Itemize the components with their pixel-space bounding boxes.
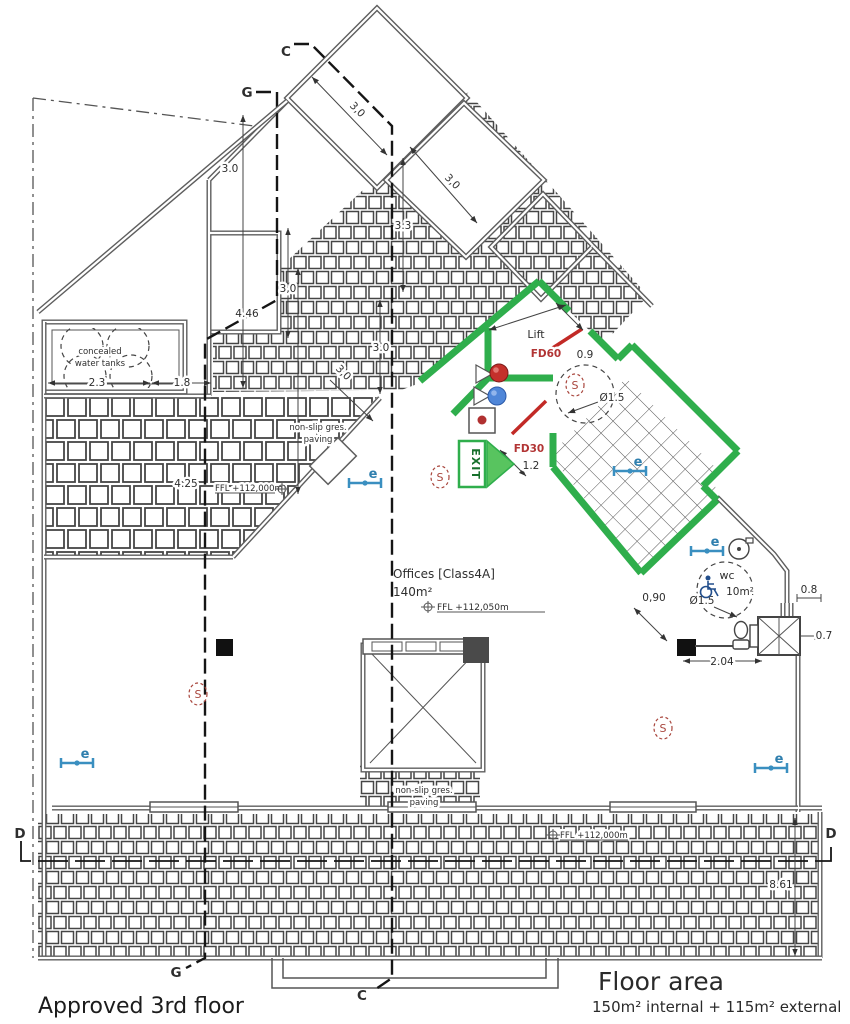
column-1 [216, 639, 233, 656]
fd60-label: FD60 [531, 348, 562, 360]
lift-label: Lift [527, 328, 545, 341]
section-marker-g-top: G [241, 85, 252, 101]
column-2 [677, 639, 696, 656]
section-marker-c-bottom: C [357, 988, 367, 1004]
wc-label: wc [719, 569, 734, 582]
duct-shaft [750, 617, 800, 655]
paving-label-2b: paving [410, 798, 439, 808]
hose-reel-icon [474, 387, 506, 405]
column-dark [463, 637, 489, 663]
dim-8.61: 8.61 [769, 879, 792, 891]
floor-plan-svg: concealed water tanks [0, 0, 850, 1024]
offices-area-label: 140m² [393, 585, 433, 599]
floor-area-detail: 150m² internal + 115m² external [592, 998, 841, 1016]
section-marker-c-top: C [281, 44, 291, 60]
bottom-terrace-paving [38, 814, 822, 958]
dim-3.0-strip: 3.0 [373, 342, 390, 354]
central-void [363, 637, 489, 770]
dim-4.25: 4.25 [174, 478, 197, 490]
dim-0.90: 0,90 [642, 592, 665, 604]
dim-4.46: 4.46 [235, 308, 259, 320]
dim-3.0-room: 3,0 [280, 283, 297, 295]
dim-3.3: 3.3 [395, 220, 412, 232]
alarm-call-point-icon [469, 408, 495, 433]
dim-2.3: 2.3 [89, 377, 106, 389]
tanks-label-1: concealed [78, 347, 121, 357]
svg-text:e: e [775, 752, 784, 767]
section-marker-g-bottom: G [170, 965, 181, 981]
water-tank-room: concealed water tanks [44, 322, 185, 397]
dim-1.2: 1.2 [523, 460, 540, 472]
svg-text:S: S [195, 688, 202, 701]
tanks-label-2: water tanks [75, 359, 126, 369]
plan-title: Approved 3rd floor [38, 994, 245, 1019]
section-marker-d-right: D [825, 826, 836, 842]
wc-area-label: 10m² [726, 586, 754, 598]
floor-plan-image: concealed water tanks [0, 0, 850, 1024]
dim-1.8: 1.8 [174, 377, 191, 389]
dim-0.7: 0.7 [816, 630, 833, 642]
svg-text:e: e [81, 747, 90, 762]
svg-text:S: S [660, 722, 667, 735]
paving-label-1b: paving [304, 435, 333, 445]
exit-label: EXIT [469, 448, 482, 480]
dim-3.0-top: 3.0 [222, 163, 239, 175]
svg-text:S: S [572, 379, 579, 392]
toilet-icon [733, 622, 749, 650]
svg-text:S: S [437, 471, 444, 484]
svg-text:e: e [634, 455, 643, 470]
svg-text:e: e [369, 467, 378, 482]
section-marker-d-left: D [14, 826, 25, 842]
paving-label-2a: non-slip gres. [395, 786, 452, 796]
offices-label: Offices [Class4A] [393, 567, 495, 581]
floor-area-title: Floor area [598, 967, 724, 996]
dim-2.04: 2.04 [710, 656, 734, 668]
svg-text:e: e [711, 535, 720, 550]
dim-0.9: 0.9 [577, 349, 594, 361]
paving-label-1a: non-slip gres. [289, 423, 346, 433]
fd30-label: FD30 [514, 443, 545, 455]
dim-dia-1.5-a: Ø1.5 [600, 392, 625, 404]
dim-0.8: 0.8 [801, 584, 818, 596]
